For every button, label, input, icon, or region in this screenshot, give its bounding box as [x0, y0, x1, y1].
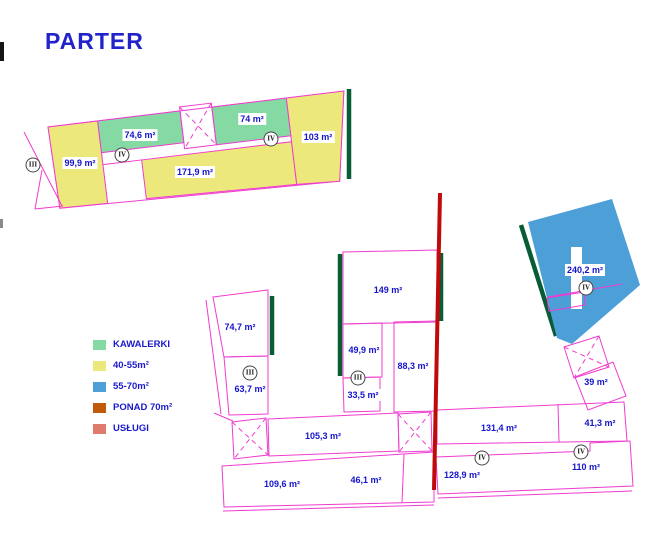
stairwell-south-right — [398, 412, 432, 452]
unit-88-3 — [394, 321, 437, 412]
unit-103 — [286, 91, 354, 186]
legend-item-55-70: 55-70m² — [93, 376, 172, 397]
legend-label: KAWALERKI — [113, 339, 170, 350]
unit-171-9 — [142, 142, 297, 203]
phase-divider-line — [434, 193, 440, 490]
unit-131-4-41-3 — [437, 402, 627, 444]
legend-label: 55-70m² — [113, 381, 149, 392]
unit-149 — [343, 250, 437, 324]
legend-item-40-55: 40-55m² — [93, 355, 172, 376]
unit-128-9-110 — [436, 441, 633, 494]
unit-33-5 — [343, 377, 380, 412]
building-east-slot — [571, 247, 582, 309]
building-central-right — [343, 250, 437, 412]
floor-plan-page: PARTER — [0, 0, 667, 540]
unit-105-3 — [268, 413, 399, 456]
building-central-left — [206, 290, 268, 415]
legend-swatch-green — [93, 340, 106, 350]
unit-63-7 — [224, 356, 268, 415]
legend-label: USŁUGI — [113, 423, 149, 434]
stairwell-south-left — [232, 418, 268, 459]
strip-south-west — [214, 412, 434, 511]
floor-plan-drawing — [0, 0, 667, 540]
legend-swatch-blue — [93, 382, 106, 392]
legend-label: 40-55m² — [113, 360, 149, 371]
legend-item-kawalerki: KAWALERKI — [93, 334, 172, 355]
legend-swatch-yellow — [93, 361, 106, 371]
legend-swatch-orange — [93, 403, 106, 413]
legend-item-ponad-70: PONAD 70m² — [93, 397, 172, 418]
building-north — [48, 87, 355, 215]
strip-south-east — [436, 336, 633, 498]
unit-74-7 — [213, 290, 268, 357]
unit-74-6 — [98, 111, 184, 153]
unit-74 — [212, 98, 291, 145]
legend: KAWALERKI 40-55m² 55-70m² PONAD 70m² USŁ… — [93, 334, 172, 439]
legend-label: PONAD 70m² — [113, 402, 172, 413]
unit-240-2 — [528, 199, 640, 344]
building-east — [521, 199, 640, 344]
unit-49-9 — [343, 323, 382, 378]
legend-item-uslugi: USŁUGI — [93, 418, 172, 439]
legend-swatch-salmon — [93, 424, 106, 434]
